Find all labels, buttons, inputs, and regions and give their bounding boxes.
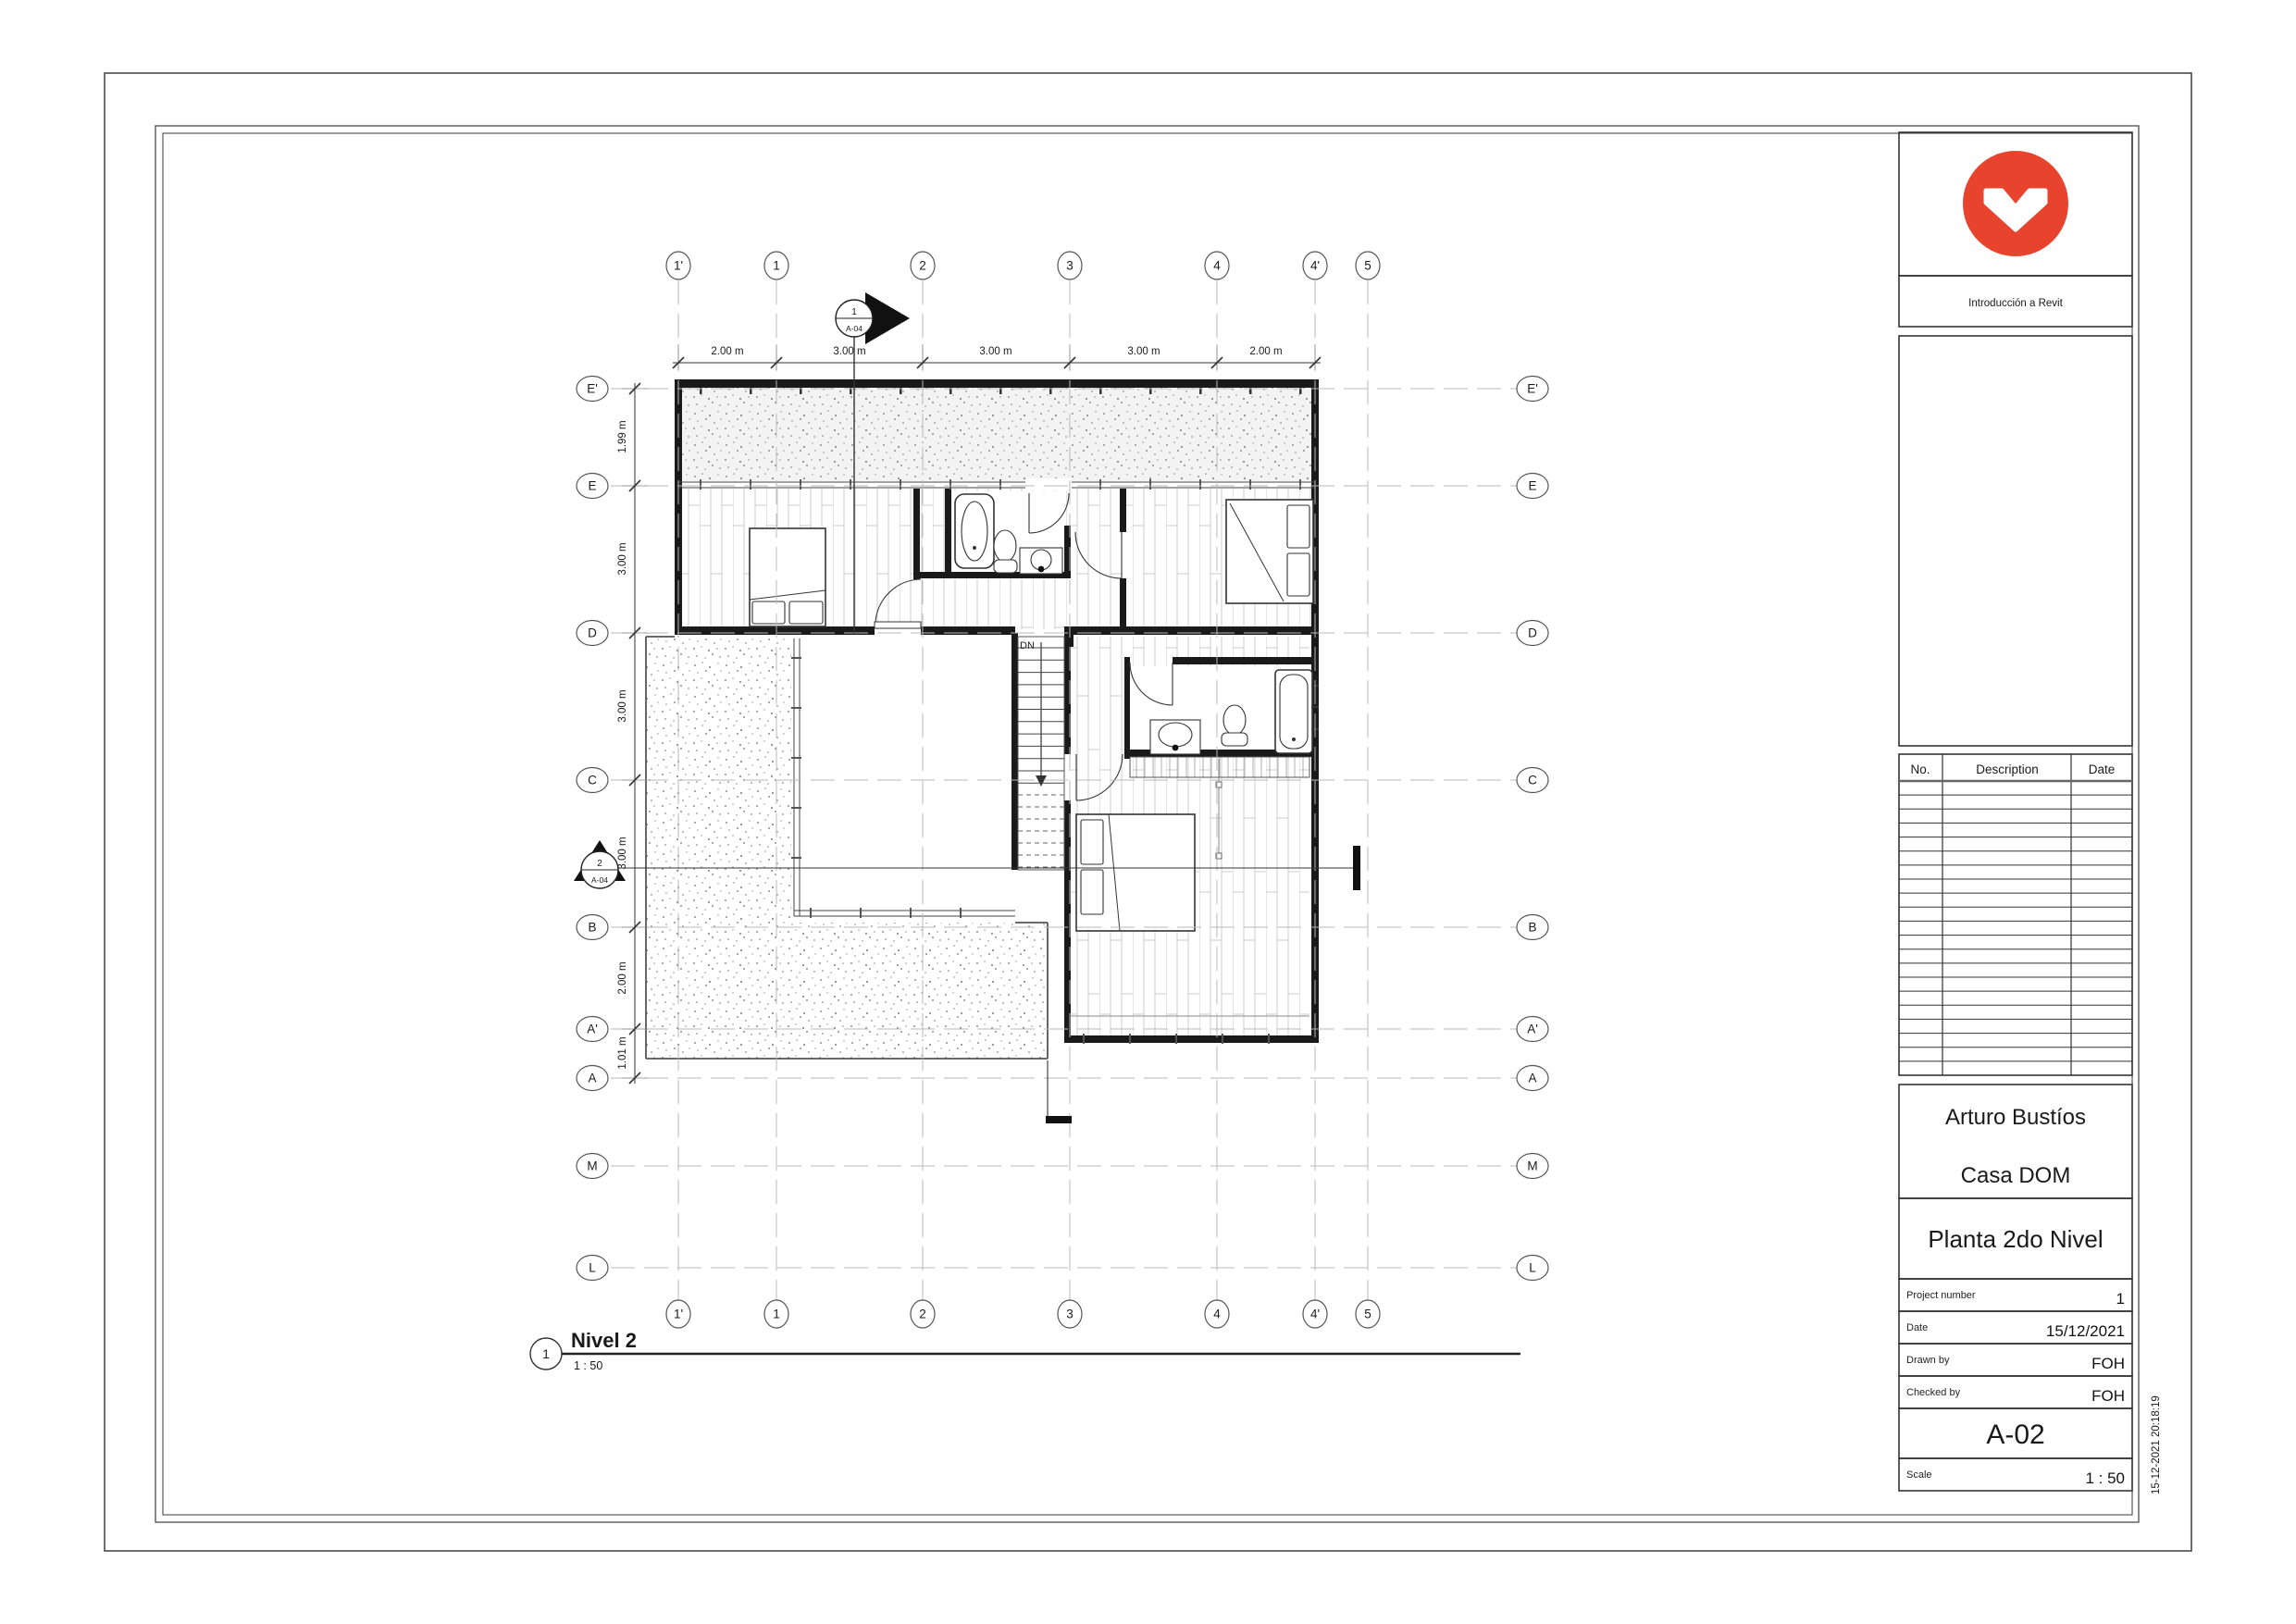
mullion-tick-void-west: [791, 807, 801, 809]
dim-label-left: 3.00 m: [617, 542, 628, 575]
view-scale: 1 : 50: [574, 1359, 602, 1372]
roof-band-stipple: [682, 387, 1315, 481]
wall-south-rightzone: [1064, 1035, 1319, 1043]
grid-bubble-label: A': [587, 1023, 598, 1036]
dim-label-top: 2.00 m: [711, 346, 743, 357]
dim-label-left: 1.99 m: [617, 420, 628, 452]
view-number: 1: [542, 1346, 550, 1361]
wall-bathL-west: [1124, 657, 1130, 759]
grid-bubble-label: D: [588, 626, 597, 640]
wall-bathL-north: [1173, 657, 1314, 664]
project-number-value: 1: [2116, 1290, 2125, 1308]
grid-bubble-label: L: [1529, 1261, 1536, 1275]
mullion-tick-void-west: [791, 707, 801, 709]
grid-bubble-label: E: [588, 479, 596, 493]
view-name: Nivel 2: [571, 1329, 637, 1352]
column-grid3-d: [1064, 626, 1074, 647]
grid-bubble-label: 1': [674, 259, 683, 273]
grid-bubble-label: 3: [1066, 1308, 1074, 1321]
mullion-tick-south-wall: [1129, 1034, 1131, 1044]
plot-timestamp: 15-12-2021 20:18:19: [2151, 1395, 2162, 1494]
mullion-tick-e-window: [850, 479, 851, 490]
mullion-tick-void-west: [791, 857, 801, 859]
section2-tail: [1353, 846, 1360, 890]
mullion-tick-e-window: [949, 479, 951, 490]
section2-sheet: A-04: [591, 875, 608, 885]
bed-right-bedroom: [1226, 500, 1313, 603]
wall-north: [675, 379, 1319, 388]
owner-name: Arturo Bustíos: [1945, 1105, 2086, 1130]
mullion-tick-void-west: [791, 757, 801, 759]
grid-bubble-label: 5: [1364, 1308, 1371, 1321]
grid-bubble-label: C: [588, 774, 597, 787]
grid-bubble-label: B: [1528, 921, 1536, 935]
grid-bubble-label: E: [1528, 479, 1536, 493]
mullion-tick-e-window: [1149, 479, 1151, 490]
grid-bubble-label: 2: [919, 1308, 926, 1321]
wall-d-right: [1064, 626, 1319, 635]
mullion-tick-void-south: [860, 908, 862, 918]
mullion-tick-void-south: [910, 908, 912, 918]
mullion-tick-void-south: [810, 908, 812, 918]
dim-label-top: 2.00 m: [1249, 346, 1282, 357]
grid-bubble-label: 1: [773, 259, 780, 273]
grid-bubble-label: 4: [1213, 259, 1221, 273]
mullion-tick-south-wall: [1175, 1034, 1177, 1044]
project-number-label: Project number: [1906, 1290, 1976, 1301]
course-label: Introducción a Revit: [1968, 298, 2063, 309]
sheet-number: A-02: [1986, 1419, 2044, 1450]
mullion-tick-e-window: [1099, 479, 1101, 490]
grid-bubble-label: E': [1527, 382, 1538, 396]
grid-bubble-label: 4': [1310, 1308, 1320, 1321]
closet-band: [1130, 757, 1309, 777]
door-gap-bathU: [1025, 478, 1072, 490]
grid-bubble-label: 4': [1310, 259, 1320, 273]
wall-d-left2: [921, 626, 1015, 635]
wall-d-left1: [675, 626, 875, 635]
mullion-tick-south-wall: [1222, 1034, 1223, 1044]
grid-bubble-label: A: [588, 1072, 596, 1085]
stair-dn-label: DN: [1020, 640, 1035, 651]
grid-bubble-label: L: [589, 1261, 596, 1275]
grid-bubble-label: B: [588, 921, 596, 935]
bed-lower-bedroom: [1076, 814, 1195, 931]
grid-bubble-label: 2: [919, 259, 926, 273]
scale-value: 1 : 50: [2085, 1469, 2125, 1487]
dim-label-left: 2.00 m: [617, 961, 628, 994]
date-value: 15/12/2021: [2046, 1322, 2125, 1340]
section1-sheet: A-04: [846, 324, 863, 333]
dim-label-top: 3.00 m: [833, 346, 865, 357]
grid-bubble-label: A': [1527, 1023, 1538, 1036]
bed-left-bedroom: [750, 528, 825, 626]
dim-label-top: 3.00 m: [979, 346, 1011, 357]
grid-bubble-label: C: [1528, 774, 1537, 787]
logo-icon: [1963, 151, 2068, 256]
toilet-upper: [994, 530, 1016, 562]
mullion-tick-e-window: [900, 479, 901, 490]
drawn-by-label: Drawn by: [1906, 1355, 1950, 1366]
wall-bed2-west-b: [1120, 578, 1126, 633]
mullion-tick-e-window: [1299, 479, 1301, 490]
rev-col-desc: Description: [1976, 762, 2039, 776]
rev-col-no: No.: [1910, 762, 1930, 776]
checked-by-label: Checked by: [1906, 1387, 1961, 1398]
drawn-by-value: FOH: [2091, 1355, 2125, 1372]
wall-bed2-west-a: [1120, 489, 1126, 532]
wall-bed1-east: [913, 489, 920, 579]
grid-bubble-label: 1: [773, 1308, 780, 1321]
rev-col-date: Date: [2089, 762, 2116, 776]
scale-label: Scale: [1906, 1469, 1932, 1481]
section2-number: 2: [597, 859, 602, 869]
mullion-tick-void-south: [960, 908, 962, 918]
grid-bubble-label: D: [1528, 626, 1537, 640]
section1-number: 1: [851, 307, 857, 317]
wall-stair-west: [1011, 633, 1018, 870]
sheet-name: Planta 2do Nivel: [1928, 1225, 2103, 1253]
grid-bubble-label: 5: [1364, 259, 1371, 273]
wall-bathU-west: [945, 489, 951, 578]
dim-label-left: 1.01 m: [617, 1036, 628, 1069]
dim-label-left: 3.00 m: [617, 837, 628, 869]
grid-bubble-label: 1': [674, 1308, 683, 1321]
dim-label-top: 3.00 m: [1127, 346, 1160, 357]
checked-by-value: FOH: [2091, 1387, 2125, 1405]
toilet-lower: [1223, 705, 1246, 735]
grid-bubble-label: M: [1527, 1159, 1537, 1173]
project-name: Casa DOM: [1961, 1163, 2071, 1188]
mullion-tick-south-wall: [1083, 1034, 1085, 1044]
dim-label-left: 3.00 m: [617, 689, 628, 722]
mullion-tick-void-west: [791, 657, 801, 659]
grid-bubble-label: E': [587, 382, 598, 396]
date-label: Date: [1906, 1322, 1928, 1333]
grid-bubble-label: 3: [1066, 259, 1074, 273]
mullion-tick-e-window: [750, 479, 751, 490]
grid-bubble-label: A: [1528, 1072, 1536, 1085]
mullion-tick-e-window: [1199, 479, 1201, 490]
sheet-canvas: DN: [0, 0, 2296, 1624]
stair: DN: [1018, 637, 1064, 870]
section1-tail: [1046, 1116, 1072, 1123]
grid-bubble-label: M: [587, 1159, 597, 1173]
mullion-tick-e-window: [700, 479, 701, 490]
grid-bubble-label: 4: [1213, 1308, 1221, 1321]
mullion-tick-e-window: [999, 479, 1001, 490]
mullion-tick-e-window: [800, 479, 801, 490]
door-leaf-void: [875, 622, 921, 628]
mullion-tick-south-wall: [1268, 1034, 1270, 1044]
mullion-tick-east-window: [1311, 706, 1319, 708]
mullion-tick-e-window: [1249, 479, 1251, 490]
